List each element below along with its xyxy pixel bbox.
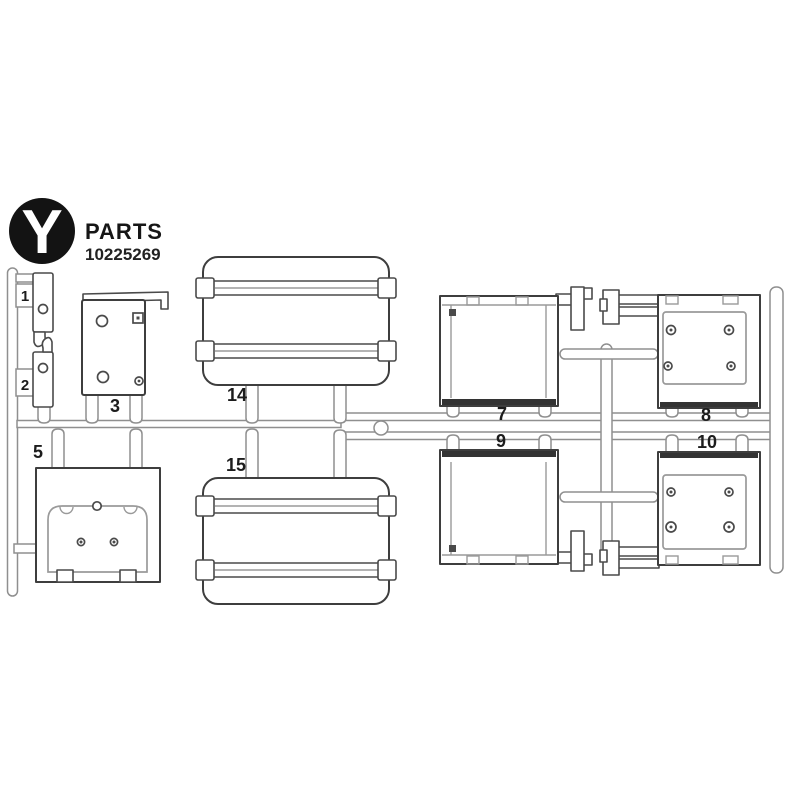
- part-1-strip: [33, 273, 53, 332]
- part-label-10: 10: [697, 432, 717, 452]
- gate-tab: [246, 385, 258, 423]
- part-2-hole: [39, 364, 48, 373]
- part-3-hole: [97, 316, 108, 327]
- runner-right: [770, 287, 783, 573]
- part-label-15: 15: [226, 455, 246, 475]
- part-14-tank-body: [203, 257, 389, 385]
- runner-branch-bottom: [560, 492, 658, 502]
- part-3-square-pin: [137, 317, 140, 320]
- part-15-strap-clamp: [196, 496, 214, 516]
- part-5-foot: [57, 570, 73, 582]
- part-14: [196, 257, 396, 385]
- runner-main: [17, 421, 341, 428]
- part-10-clip-bar: [618, 547, 659, 556]
- part-9: [440, 450, 592, 571]
- part-9-box: [440, 450, 558, 564]
- logo-title: PARTS: [85, 219, 163, 244]
- part-15: [196, 478, 396, 604]
- part-2: [33, 338, 53, 407]
- part-label-8: 8: [701, 405, 711, 425]
- part-8-clip-bar: [618, 307, 659, 316]
- part-label-1: 1: [21, 288, 29, 305]
- gate-tab: [666, 435, 678, 452]
- part-10-pin: [670, 491, 673, 494]
- part-8-pin: [730, 365, 733, 368]
- gate-tab: [130, 429, 142, 468]
- gate-tab: [666, 408, 678, 417]
- part-7-bracket-flange: [571, 287, 584, 330]
- part-10-thick-edge: [660, 453, 758, 458]
- part-5: [36, 468, 160, 582]
- gate-tab: [736, 435, 748, 452]
- part-7: [440, 287, 592, 406]
- part-8-pin: [728, 329, 731, 332]
- part-5-hole: [93, 502, 101, 510]
- part-9-clip-detail: [449, 545, 456, 552]
- part-3-pin: [138, 380, 141, 383]
- runner-mid-vertical: [601, 344, 612, 559]
- runner-branch-top: [560, 349, 658, 359]
- gate-tab: [736, 408, 748, 417]
- part-8-pin: [667, 365, 670, 368]
- gate-blob: [374, 421, 388, 435]
- part-14-strap-clamp: [196, 341, 214, 361]
- part-14-strap-clamp: [378, 278, 396, 298]
- part-15-strap-clamp: [378, 560, 396, 580]
- part-10-pin: [728, 491, 731, 494]
- gate-tab: [86, 395, 98, 423]
- logo-letter: Y: [21, 198, 62, 267]
- part-3-hole: [98, 372, 109, 383]
- part-label-14: 14: [227, 385, 247, 405]
- part-14-strap-clamp: [378, 341, 396, 361]
- part-5-pin: [113, 541, 116, 544]
- gate-tab: [130, 395, 142, 423]
- part-2-tooth: [42, 338, 52, 352]
- part-10-pin: [670, 526, 673, 529]
- part-15-strap-clamp: [196, 560, 214, 580]
- part-1: [33, 273, 53, 346]
- part-1-hole: [39, 305, 48, 314]
- parts-sprue-diagram: Y PARTS 10225269: [0, 0, 800, 800]
- part-2-strip: [33, 352, 53, 407]
- part-15-strap-clamp: [378, 496, 396, 516]
- part-7-clip-detail: [449, 309, 456, 316]
- gate-tab: [38, 407, 50, 423]
- logo: Y PARTS 10225269: [9, 198, 163, 267]
- part-label-5: 5: [33, 442, 43, 462]
- gate-tab: [246, 429, 258, 478]
- part-8-pin: [670, 329, 673, 332]
- part-label-2: 2: [21, 377, 29, 394]
- part-3: [82, 292, 168, 395]
- part-label-9: 9: [496, 431, 506, 451]
- logo-part-number: 10225269: [85, 245, 161, 264]
- gate-tab: [52, 429, 64, 468]
- part-5-pin: [80, 541, 83, 544]
- gate-tab: [447, 435, 459, 450]
- part-8-clip-notch: [600, 299, 607, 311]
- part-10-clip-notch: [600, 550, 607, 562]
- part-5-box: [36, 468, 160, 582]
- part-10-pin: [728, 526, 731, 529]
- runner-stub-part1: [16, 274, 34, 282]
- gate-tab: [334, 385, 346, 423]
- part-8-clip-bar: [618, 295, 659, 304]
- part-label-3: 3: [110, 396, 120, 416]
- part-5-foot: [120, 570, 136, 582]
- part-10: [600, 452, 760, 575]
- part-label-7: 7: [497, 404, 507, 424]
- part-10-clip-bar: [618, 559, 659, 568]
- part-9-thick-edge: [442, 451, 556, 457]
- part-9-bracket-flange: [571, 531, 584, 571]
- gate-tab: [539, 435, 551, 450]
- parts-sheet: Y PARTS 10225269: [0, 0, 800, 800]
- part-7-box: [440, 296, 558, 406]
- gate-tab: [334, 430, 346, 478]
- part-15-tank-body: [203, 478, 389, 604]
- part-14-strap-clamp: [196, 278, 214, 298]
